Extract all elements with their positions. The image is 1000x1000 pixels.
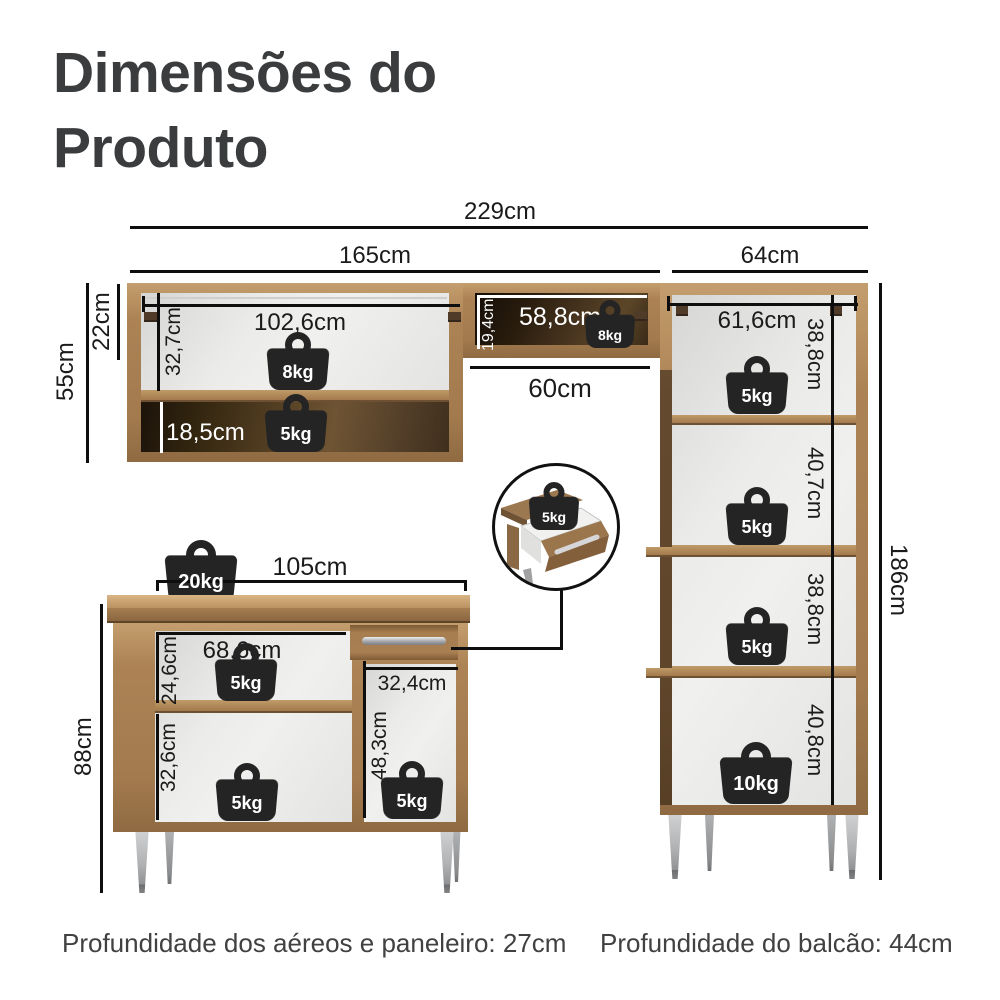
kettlebell-weight-icon: 5kg — [531, 482, 577, 530]
weight-capacity-label: 5kg — [531, 509, 577, 525]
dim-base-width: 105cm — [248, 553, 372, 582]
dim-section2-height: 40,7cm — [800, 428, 828, 538]
dim-clearance-width: 60cm — [502, 373, 618, 404]
dim-top-offset: 22cm — [88, 276, 116, 368]
dim-line-right-opening-width — [364, 667, 458, 670]
dim-line-upper-interior-width — [143, 304, 460, 307]
product-dimensions-infographic: Dimensões do Produto 229cm 165cm 64cm 55… — [0, 0, 1000, 1000]
dim-total-width: 229cm — [440, 198, 560, 226]
kettlebell-weight-icon: 5kg — [729, 607, 785, 665]
glass-shelf-edge — [143, 297, 447, 299]
countertop-front-edge — [107, 608, 470, 623]
weight-capacity-label: 5kg — [729, 637, 785, 658]
kettlebell-weight-icon: 5kg — [729, 356, 785, 414]
dim-line-tall-total-height — [879, 283, 882, 880]
cabinet-leg — [131, 832, 153, 893]
dim-middle-height: 19,4cm — [480, 298, 502, 352]
dim-line-lower-shelf-height — [160, 402, 163, 453]
dim-section1-height: 38,8cm — [800, 300, 828, 408]
inset-connector-horizontal — [451, 647, 563, 650]
footnote-base-depth: Profundidade do balcão: 44cm — [600, 928, 953, 959]
kettlebell-weight-icon: 8kg — [587, 300, 633, 348]
dim-upper-interior-height: 32,7cm — [162, 296, 188, 388]
weight-capacity-label: 5kg — [729, 517, 785, 538]
inset-connector-vertical — [560, 589, 563, 650]
dim-line-tall-cabinet-width — [672, 270, 868, 273]
dim-lower-shelf-height: 18,5cm — [166, 419, 245, 447]
kettlebell-weight-icon: 5kg — [384, 761, 440, 819]
dim-line-upper-section-width — [130, 270, 660, 273]
dim-line-right-opening-height — [363, 661, 366, 818]
cabinet-leg — [841, 815, 863, 879]
dim-line-tall-sections — [831, 295, 834, 805]
dim-base-height: 88cm — [70, 696, 98, 798]
weight-capacity-label: 8kg — [270, 362, 326, 383]
cabinet-leg — [162, 832, 177, 884]
kettlebell-weight-icon: 5kg — [268, 394, 324, 452]
dim-upper-height: 55cm — [52, 320, 80, 424]
cabinet-leg — [824, 815, 839, 871]
countertop — [107, 595, 470, 608]
dim-line-base-height — [100, 604, 103, 893]
weight-capacity-label: 8kg — [587, 327, 633, 343]
dim-tall-cabinet-width: 64cm — [712, 242, 828, 270]
weight-capacity-label: 5kg — [384, 791, 440, 812]
weight-capacity-label: 5kg — [219, 793, 275, 814]
kettlebell-weight-icon: 8kg — [270, 332, 326, 390]
dim-tick — [667, 296, 670, 311]
weight-capacity-label: 5kg — [729, 386, 785, 407]
dim-tick — [854, 296, 857, 311]
base-cabinet-shelf — [155, 700, 352, 713]
kettlebell-weight-icon: 5kg — [218, 643, 274, 701]
kettlebell-weight-icon: 10kg — [724, 742, 788, 804]
dim-upper-section-width: 165cm — [315, 242, 435, 270]
hinge-icon — [676, 306, 688, 316]
cabinet-leg — [664, 815, 686, 879]
tall-cabinet-shelf — [672, 545, 856, 557]
tall-cabinet-shelf — [672, 415, 856, 425]
dim-tick — [156, 580, 159, 591]
dim-line-middle-width — [477, 295, 647, 298]
shelf-front-lip — [646, 668, 672, 678]
dim-line-left-interior-width — [156, 632, 346, 635]
kettlebell-weight-icon: 5kg — [729, 487, 785, 545]
dim-section4-height: 40,8cm — [800, 684, 828, 796]
tall-cabinet-side-shadow — [660, 370, 672, 805]
hinge-icon — [635, 311, 647, 321]
dim-tick — [142, 296, 145, 312]
dim-line-clearance-width — [470, 366, 650, 369]
weight-capacity-label: 10kg — [724, 773, 788, 796]
dim-lower-shelf-height: 32,6cm — [157, 708, 183, 808]
kettlebell-weight-icon: 5kg — [219, 763, 275, 821]
hinge-icon — [448, 312, 461, 322]
dim-tall-total-height: 186cm — [884, 518, 912, 642]
footnote-upper-depth: Profundidade dos aéreos e paneleiro: 27c… — [62, 928, 566, 959]
dim-section3-height: 38,8cm — [800, 556, 828, 662]
page-title: Dimensões do Produto — [53, 36, 483, 186]
cabinet-leg — [702, 815, 717, 871]
kettlebell-weight-icon: 20kg — [169, 540, 233, 602]
dim-line-tall-interior-width — [668, 303, 858, 306]
tall-cabinet-shelf — [672, 666, 856, 678]
dim-line-top-offset — [117, 284, 120, 360]
dim-line-total-width — [130, 226, 868, 229]
dim-tick — [464, 580, 467, 591]
weight-capacity-label: 20kg — [169, 571, 233, 594]
shelf-front-lip — [646, 547, 672, 557]
dim-line-upper-interior-height — [157, 293, 160, 391]
hinge-icon — [144, 312, 157, 322]
drawer-handle — [362, 637, 446, 645]
weight-capacity-label: 5kg — [268, 424, 324, 445]
weight-capacity-label: 5kg — [218, 673, 274, 694]
dim-upper-shelf-height: 24,6cm — [158, 624, 184, 718]
